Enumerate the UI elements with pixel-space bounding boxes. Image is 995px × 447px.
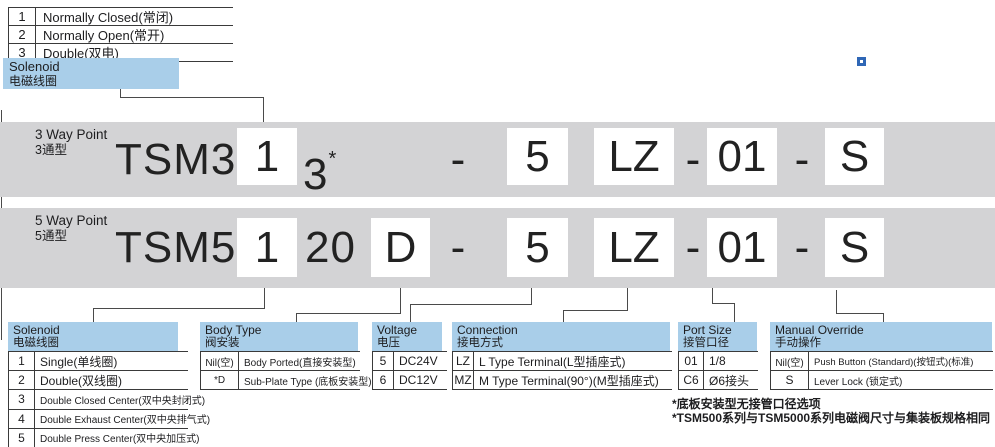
table-header: Voltage 电压: [372, 322, 442, 351]
row-label: Normally Open(常开): [36, 25, 164, 44]
row-code: 2: [9, 371, 35, 389]
connector-line: [836, 313, 884, 314]
row-label: DC24V: [394, 354, 438, 368]
connector-line: [836, 290, 837, 313]
table-title-en: Solenoid: [13, 323, 178, 337]
table-solenoid-options: Solenoid 电磁线圈 1 Single(单线圈) 2 Double(双线圈…: [8, 322, 188, 447]
code-box-connection: LZ: [594, 218, 674, 277]
table-row: 2 Double(双线圈): [9, 371, 188, 390]
code-prefix: TSM5: [115, 208, 236, 288]
connector-line: [263, 97, 264, 122]
connector-line: [296, 313, 297, 322]
connector-line: [712, 303, 735, 304]
connector-line: [563, 310, 564, 322]
table-row: LZ L Type Terminal(L型插座式): [453, 352, 672, 371]
table-row: 1 Normally Closed(常闭): [9, 8, 233, 26]
table-title-zh: 电磁线圈: [13, 337, 178, 350]
code-dash: -: [681, 208, 705, 288]
table-voltage: Voltage 电压 5 DC24V 6 DC12V: [372, 322, 447, 390]
row-code: MZ: [453, 371, 474, 389]
table-header: Connection 接电方式: [452, 322, 670, 351]
ordering-code-diagram: 1 Normally Closed(常闭) 2 Normally Open(常开…: [0, 0, 995, 447]
table-title-en: Voltage: [377, 323, 442, 337]
table-row: 1 Single(单线圈): [9, 352, 188, 371]
table-header: Port Size 接管口径: [678, 322, 757, 351]
table-title-zh: 接电方式: [457, 337, 670, 350]
callout-en: Solenoid: [9, 59, 179, 74]
code-band-3way: 3 Way Point 3通型 TSM3 1 3* - 5 LZ - 01 - …: [0, 122, 995, 197]
row-label: L Type Terminal(L型插座式): [474, 353, 626, 370]
code-box-override: S: [825, 218, 884, 277]
table-header: Body Type 阀安装: [200, 322, 358, 351]
table-row: C6 Ø6接头: [679, 371, 758, 390]
table-row: Nil(空) Body Ported(直接安装型): [201, 352, 360, 371]
table-title-en: Port Size: [683, 323, 757, 337]
table-row: *D Sub-Plate Type (底板安装型): [201, 371, 360, 390]
code-box-port-size: 01: [707, 218, 777, 277]
footnotes: *底板安装型无接管口径选项 *TSM500系列与TSM5000系列电磁阀尺寸与集…: [672, 398, 994, 425]
row-label: Push Button (Standard)(按钮式)(标准): [809, 354, 973, 368]
connector-line: [563, 310, 628, 311]
code-box-voltage: 5: [507, 218, 568, 277]
band-title: 5 Way Point 5通型: [35, 213, 107, 244]
row-code: 5: [373, 352, 394, 370]
table-body-type: Body Type 阀安装 Nil(空) Body Ported(直接安装型) …: [200, 322, 360, 390]
connector-line: [410, 304, 411, 322]
connector-line: [93, 308, 94, 322]
connector-line: [734, 303, 735, 322]
row-code: *D: [201, 371, 239, 389]
row-label: Sub-Plate Type (底板安装型): [239, 373, 372, 388]
row-label: Body Ported(直接安装型): [239, 354, 356, 369]
table-row: 01 1/8: [679, 352, 758, 371]
table-row: 5 Double Press Center(双中央加压式): [9, 429, 188, 447]
table-header: Solenoid 电磁线圈: [8, 322, 178, 351]
table-row: 4 Double Exhaust Center(双中央排气式): [9, 410, 188, 429]
table-row: 5 DC24V: [373, 352, 447, 371]
row-label: Ø6接头: [704, 372, 749, 389]
table-connection: Connection 接电方式 LZ L Type Terminal(L型插座式…: [452, 322, 672, 390]
table-row: 6 DC12V: [373, 371, 447, 390]
table-title-en: Manual Override: [775, 323, 992, 337]
row-label: M Type Terminal(90°)(M型插座式): [474, 372, 659, 389]
code-dash: -: [681, 122, 705, 197]
row-label: Normally Closed(常闭): [36, 7, 173, 26]
blue-square-marker-icon: [857, 57, 866, 66]
solenoid-callout-label: Solenoid 电磁线圈: [3, 58, 179, 89]
row-code: LZ: [453, 352, 474, 370]
code-box-body-type: D: [371, 218, 430, 277]
band-title-en: 5 Way Point: [35, 213, 107, 229]
code-box-solenoid: 1: [237, 128, 297, 185]
table-row: 2 Normally Open(常开): [9, 26, 233, 44]
solenoid-function-table: 1 Normally Closed(常闭) 2 Normally Open(常开…: [8, 7, 233, 62]
connector-line: [712, 288, 713, 303]
band-title: 3 Way Point 3通型: [35, 127, 107, 158]
row-label: Double Closed Center(双中央封闭式): [35, 392, 205, 407]
code-dash: -: [790, 208, 814, 288]
connector-line: [264, 288, 265, 308]
band-title-en: 3 Way Point: [35, 127, 107, 143]
table-row: Nil(空) Push Button (Standard)(按钮式)(标准): [771, 352, 993, 371]
code-dash: -: [446, 122, 470, 197]
code-box-voltage: 5: [507, 128, 568, 185]
row-label: Double Exhaust Center(双中央排气式): [35, 411, 210, 426]
code-band-5way: 5 Way Point 5通型 TSM5 1 20 D - 5 LZ - 01 …: [0, 208, 995, 288]
code-box-connection: LZ: [594, 128, 674, 185]
table-row: 3 Double Closed Center(双中央封闭式): [9, 390, 188, 409]
connector-line: [531, 288, 532, 304]
table-title-zh: 接管口径: [683, 337, 757, 350]
callout-zh: 电磁线圈: [9, 74, 179, 88]
row-label: Lever Lock (锁定式): [809, 373, 902, 388]
connector-line: [883, 313, 884, 322]
code-box-override: S: [825, 128, 884, 185]
table-port-size: Port Size 接管口径 01 1/8 C6 Ø6接头: [678, 322, 758, 390]
row-label: 1/8: [704, 354, 726, 368]
connector-line: [410, 304, 532, 305]
row-code: 5: [9, 429, 35, 447]
row-code: S: [771, 371, 809, 389]
code-dash: -: [446, 208, 470, 288]
row-code: 01: [679, 352, 704, 370]
connector-line: [93, 308, 265, 309]
code-box-port-size: 01: [707, 128, 777, 185]
row-code: 1: [9, 352, 35, 370]
table-row: S Lever Lock (锁定式): [771, 371, 993, 390]
table-title-zh: 手动操作: [775, 337, 992, 350]
row-label: DC12V: [394, 373, 438, 387]
table-title-en: Connection: [457, 323, 670, 337]
table-manual-override: Manual Override 手动操作 Nil(空) Push Button …: [770, 322, 993, 390]
code-box-solenoid: 1: [237, 218, 297, 277]
connector-line: [296, 313, 401, 314]
code-dash: -: [790, 122, 814, 197]
band-title-zh: 3通型: [35, 143, 107, 158]
row-code: Nil(空): [201, 352, 239, 370]
asterisk-note: *: [328, 148, 336, 170]
table-title-zh: 阀安装: [205, 337, 358, 350]
table-row: MZ M Type Terminal(90°)(M型插座式): [453, 371, 672, 390]
code-prefix: TSM3: [115, 122, 236, 197]
row-code: 6: [373, 371, 394, 389]
code-series-number: 20: [305, 208, 356, 288]
footnote-series: *TSM500系列与TSM5000系列电磁阀尺寸与集装板规格相同: [672, 412, 994, 426]
row-label: Double Press Center(双中央加压式): [35, 430, 199, 445]
band-title-zh: 5通型: [35, 229, 107, 244]
row-code: 3: [9, 390, 35, 408]
row-code: 2: [9, 26, 36, 43]
row-label: Single(单线圈): [35, 353, 117, 370]
row-code: 1: [9, 8, 36, 25]
code-port-number: 3*: [303, 122, 336, 212]
connector-line: [400, 288, 401, 313]
row-code: 4: [9, 410, 35, 428]
footnote-port-size: *底板安装型无接管口径选项: [672, 398, 994, 412]
connector-line: [120, 97, 264, 98]
table-title-en: Body Type: [205, 323, 358, 337]
row-code: Nil(空): [771, 352, 809, 370]
table-header: Manual Override 手动操作: [770, 322, 992, 351]
connector-line: [627, 288, 628, 310]
row-label: Double(双线圈): [35, 372, 122, 389]
table-title-zh: 电压: [377, 337, 442, 350]
row-code: C6: [679, 371, 704, 389]
